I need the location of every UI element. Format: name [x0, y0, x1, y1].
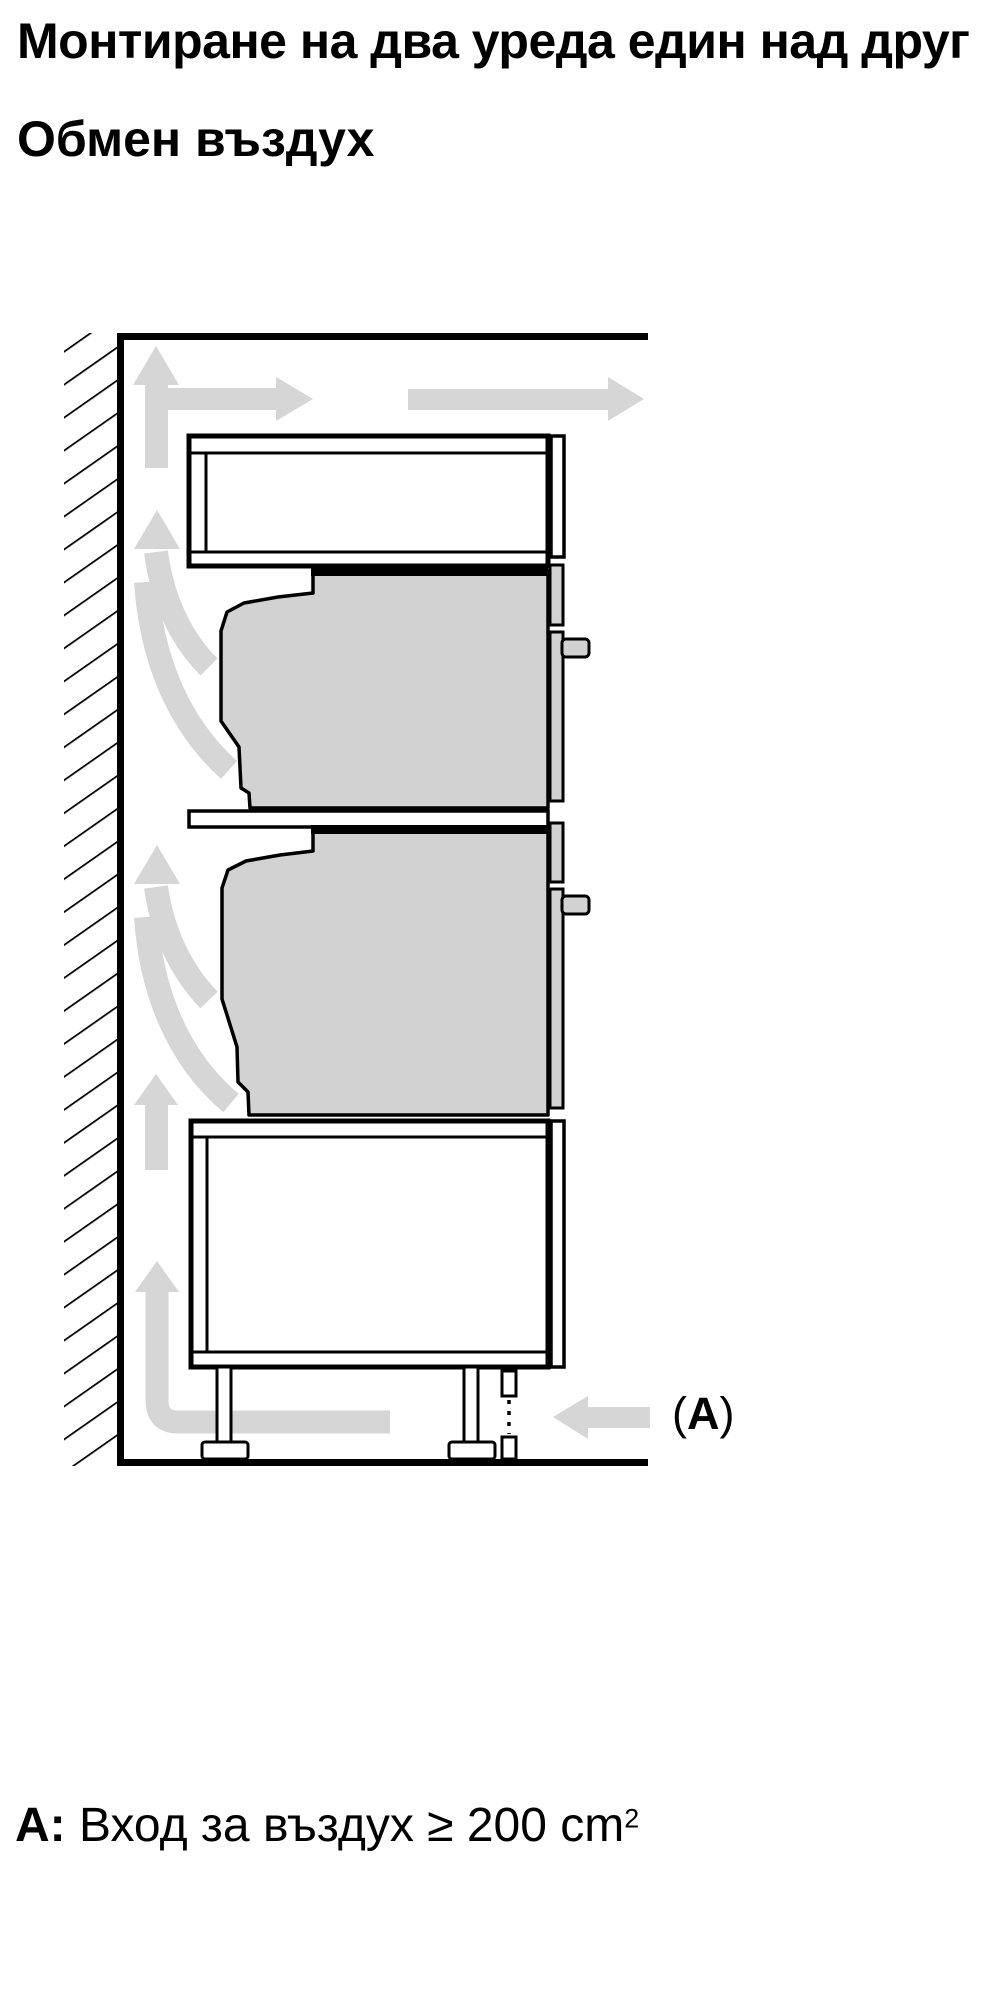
base-cabinet: [191, 1121, 548, 1367]
top-cabinet-side-panel: [551, 436, 564, 557]
lower-oven: [222, 823, 589, 1115]
airflow-curve-lower: [134, 845, 231, 1103]
floor-line: [117, 1459, 648, 1466]
right-leg: [464, 1367, 478, 1443]
footnote-superscript: 2: [624, 1804, 639, 1834]
footnote-text: Вход за въздух ≥ 200 cm: [66, 1799, 625, 1852]
air-inlet-arrow: [553, 1396, 650, 1439]
airflow-up-arrow-bottom: [134, 1074, 178, 1170]
airflow-right-arrow-inner: [158, 377, 313, 421]
left-leg: [217, 1367, 231, 1443]
wall-hatching: [64, 333, 121, 1466]
plinth-marker: [502, 1371, 516, 1459]
air-inlet-label: (A): [672, 1388, 735, 1440]
wall-line: [117, 333, 124, 1466]
upper-oven: [221, 565, 589, 808]
shelf: [189, 811, 548, 827]
label-a-paren-open: (: [672, 1388, 687, 1439]
label-a-paren-close: ): [720, 1388, 735, 1439]
manual-page: { "colors": { "ink": "#000000", "arrow_g…: [0, 0, 1000, 2000]
left-foot: [202, 1442, 248, 1459]
footnote-term: А:: [15, 1799, 66, 1852]
ceiling-line: [117, 333, 648, 340]
installation-diagram: [0, 0, 1000, 2000]
top-cabinet: [189, 436, 548, 566]
lower-oven-knob: [562, 896, 589, 914]
base-cabinet-side-panel: [551, 1121, 564, 1367]
label-a-letter: A: [687, 1388, 720, 1439]
upper-oven-knob: [562, 639, 589, 657]
airflow-right-arrow-outer: [408, 377, 644, 421]
right-foot: [449, 1442, 495, 1459]
footnote: А: Вход за въздух ≥ 200 cm2: [15, 1798, 639, 1853]
